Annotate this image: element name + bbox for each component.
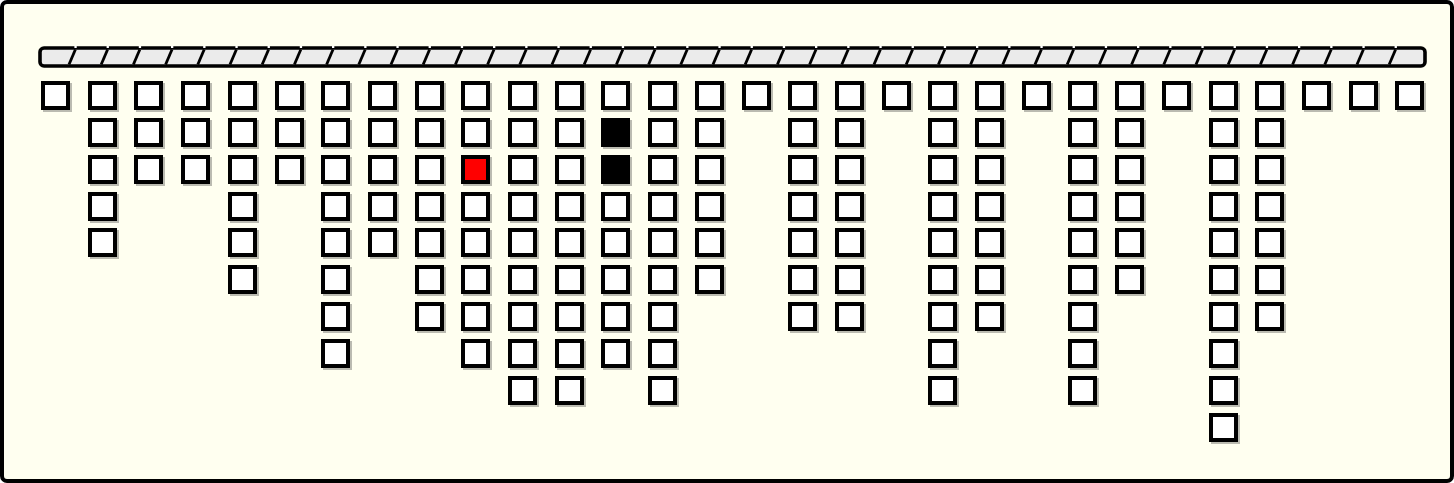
cell[interactable] (975, 81, 1004, 110)
cell[interactable] (368, 155, 397, 184)
cell[interactable] (1115, 228, 1144, 257)
cell[interactable] (461, 228, 490, 257)
cell[interactable] (1209, 118, 1238, 147)
cell[interactable] (1209, 192, 1238, 221)
cell[interactable] (461, 118, 490, 147)
cell[interactable] (1068, 265, 1097, 294)
cell[interactable] (555, 302, 584, 331)
cell[interactable] (975, 192, 1004, 221)
cell[interactable] (508, 376, 537, 405)
cell[interactable] (788, 192, 817, 221)
cell[interactable] (1255, 265, 1284, 294)
cell[interactable] (835, 228, 864, 257)
cell[interactable] (555, 81, 584, 110)
cell[interactable] (275, 81, 304, 110)
cell[interactable] (1255, 228, 1284, 257)
cell[interactable] (1068, 302, 1097, 331)
cell[interactable] (321, 265, 350, 294)
cell[interactable] (928, 155, 957, 184)
cell[interactable] (228, 81, 257, 110)
cell[interactable] (601, 81, 630, 110)
cell[interactable] (181, 81, 210, 110)
cell[interactable] (555, 339, 584, 368)
cell[interactable] (648, 228, 677, 257)
cell[interactable] (601, 302, 630, 331)
cell[interactable] (1115, 192, 1144, 221)
cell[interactable] (508, 302, 537, 331)
cell[interactable] (321, 192, 350, 221)
cell[interactable] (1209, 339, 1238, 368)
cell[interactable] (1209, 228, 1238, 257)
cell[interactable] (508, 265, 537, 294)
cell[interactable] (1255, 192, 1284, 221)
cell[interactable] (695, 81, 724, 110)
cell[interactable] (928, 302, 957, 331)
cell[interactable] (1068, 376, 1097, 405)
cell[interactable] (275, 155, 304, 184)
cell[interactable] (134, 81, 163, 110)
cell[interactable] (88, 155, 117, 184)
cell[interactable] (928, 376, 957, 405)
cell[interactable] (461, 265, 490, 294)
cell[interactable] (975, 118, 1004, 147)
cell[interactable] (648, 155, 677, 184)
board (4, 4, 1450, 479)
cell[interactable] (555, 192, 584, 221)
cell[interactable] (1068, 118, 1097, 147)
cell[interactable] (461, 192, 490, 221)
cell[interactable] (601, 339, 630, 368)
cell[interactable] (695, 155, 724, 184)
cell[interactable] (742, 81, 771, 110)
cell[interactable] (181, 118, 210, 147)
cell[interactable] (228, 228, 257, 257)
cell[interactable] (508, 192, 537, 221)
cell[interactable] (695, 228, 724, 257)
cell[interactable] (1349, 81, 1378, 110)
cell[interactable] (648, 265, 677, 294)
cell[interactable] (508, 339, 537, 368)
cell[interactable] (928, 118, 957, 147)
cell[interactable] (555, 265, 584, 294)
cell[interactable] (928, 265, 957, 294)
cell[interactable] (695, 192, 724, 221)
cell[interactable] (415, 265, 444, 294)
cell[interactable] (321, 339, 350, 368)
cell[interactable] (1022, 81, 1051, 110)
cell[interactable] (368, 228, 397, 257)
cell[interactable] (1209, 302, 1238, 331)
cell[interactable] (41, 81, 70, 110)
cell[interactable] (368, 118, 397, 147)
cell[interactable] (648, 339, 677, 368)
cell[interactable] (928, 192, 957, 221)
cell[interactable] (928, 228, 957, 257)
cell[interactable] (1255, 302, 1284, 331)
cell[interactable] (648, 302, 677, 331)
cell[interactable] (882, 81, 911, 110)
cell[interactable] (228, 155, 257, 184)
cell[interactable] (835, 118, 864, 147)
cell[interactable] (1068, 339, 1097, 368)
cell[interactable] (508, 118, 537, 147)
cell[interactable] (1395, 81, 1424, 110)
cell[interactable] (648, 192, 677, 221)
cell[interactable] (835, 155, 864, 184)
cell[interactable] (1115, 155, 1144, 184)
cell[interactable] (228, 265, 257, 294)
cell[interactable] (788, 81, 817, 110)
cell[interactable] (1302, 81, 1331, 110)
window-frame (0, 0, 1454, 483)
cell[interactable] (1115, 118, 1144, 147)
cell[interactable] (321, 302, 350, 331)
cell[interactable] (788, 228, 817, 257)
cell[interactable] (648, 118, 677, 147)
cell[interactable] (1255, 155, 1284, 184)
cell[interactable] (788, 265, 817, 294)
cell[interactable] (368, 192, 397, 221)
cell[interactable] (975, 228, 1004, 257)
cell[interactable] (415, 192, 444, 221)
cell[interactable] (555, 155, 584, 184)
cell[interactable] (461, 339, 490, 368)
cell[interactable] (508, 228, 537, 257)
cell[interactable] (134, 118, 163, 147)
cell[interactable] (648, 81, 677, 110)
cell-black[interactable] (601, 155, 630, 184)
cell[interactable] (508, 81, 537, 110)
cell[interactable] (88, 228, 117, 257)
cell[interactable] (228, 192, 257, 221)
cell[interactable] (415, 155, 444, 184)
cell[interactable] (415, 302, 444, 331)
cell[interactable] (1068, 228, 1097, 257)
cell[interactable] (1209, 81, 1238, 110)
cell[interactable] (1162, 81, 1191, 110)
cell[interactable] (788, 302, 817, 331)
cell[interactable] (1068, 192, 1097, 221)
cell[interactable] (555, 118, 584, 147)
cell[interactable] (1209, 413, 1238, 442)
cell[interactable] (1255, 118, 1284, 147)
cell[interactable] (508, 155, 537, 184)
cell[interactable] (835, 192, 864, 221)
cell[interactable] (1115, 265, 1144, 294)
cell[interactable] (461, 302, 490, 331)
cell[interactable] (88, 118, 117, 147)
cell[interactable] (1255, 81, 1284, 110)
cell[interactable] (1209, 155, 1238, 184)
cell[interactable] (648, 376, 677, 405)
cell[interactable] (975, 155, 1004, 184)
cell[interactable] (601, 265, 630, 294)
cell[interactable] (975, 265, 1004, 294)
cell-red[interactable] (461, 155, 490, 184)
cell[interactable] (835, 265, 864, 294)
cell[interactable] (928, 339, 957, 368)
cell-black[interactable] (601, 118, 630, 147)
cell[interactable] (368, 81, 397, 110)
cell[interactable] (134, 155, 163, 184)
cell[interactable] (415, 81, 444, 110)
cell[interactable] (1209, 376, 1238, 405)
cell[interactable] (601, 228, 630, 257)
cell[interactable] (1068, 155, 1097, 184)
cell[interactable] (601, 192, 630, 221)
cell[interactable] (1115, 81, 1144, 110)
cell[interactable] (228, 118, 257, 147)
cell[interactable] (321, 118, 350, 147)
cell[interactable] (835, 81, 864, 110)
cell[interactable] (975, 302, 1004, 331)
cell[interactable] (321, 155, 350, 184)
cell[interactable] (461, 81, 490, 110)
cell[interactable] (415, 228, 444, 257)
cell[interactable] (788, 118, 817, 147)
cell[interactable] (88, 192, 117, 221)
cell[interactable] (1209, 265, 1238, 294)
cell[interactable] (1068, 81, 1097, 110)
cell[interactable] (181, 155, 210, 184)
cell[interactable] (788, 155, 817, 184)
cell[interactable] (415, 118, 444, 147)
cell[interactable] (928, 81, 957, 110)
cell[interactable] (695, 118, 724, 147)
cell[interactable] (835, 302, 864, 331)
cell[interactable] (555, 228, 584, 257)
cell[interactable] (695, 265, 724, 294)
cell[interactable] (555, 376, 584, 405)
cell[interactable] (275, 118, 304, 147)
cell[interactable] (321, 81, 350, 110)
cell[interactable] (88, 81, 117, 110)
cell[interactable] (321, 228, 350, 257)
